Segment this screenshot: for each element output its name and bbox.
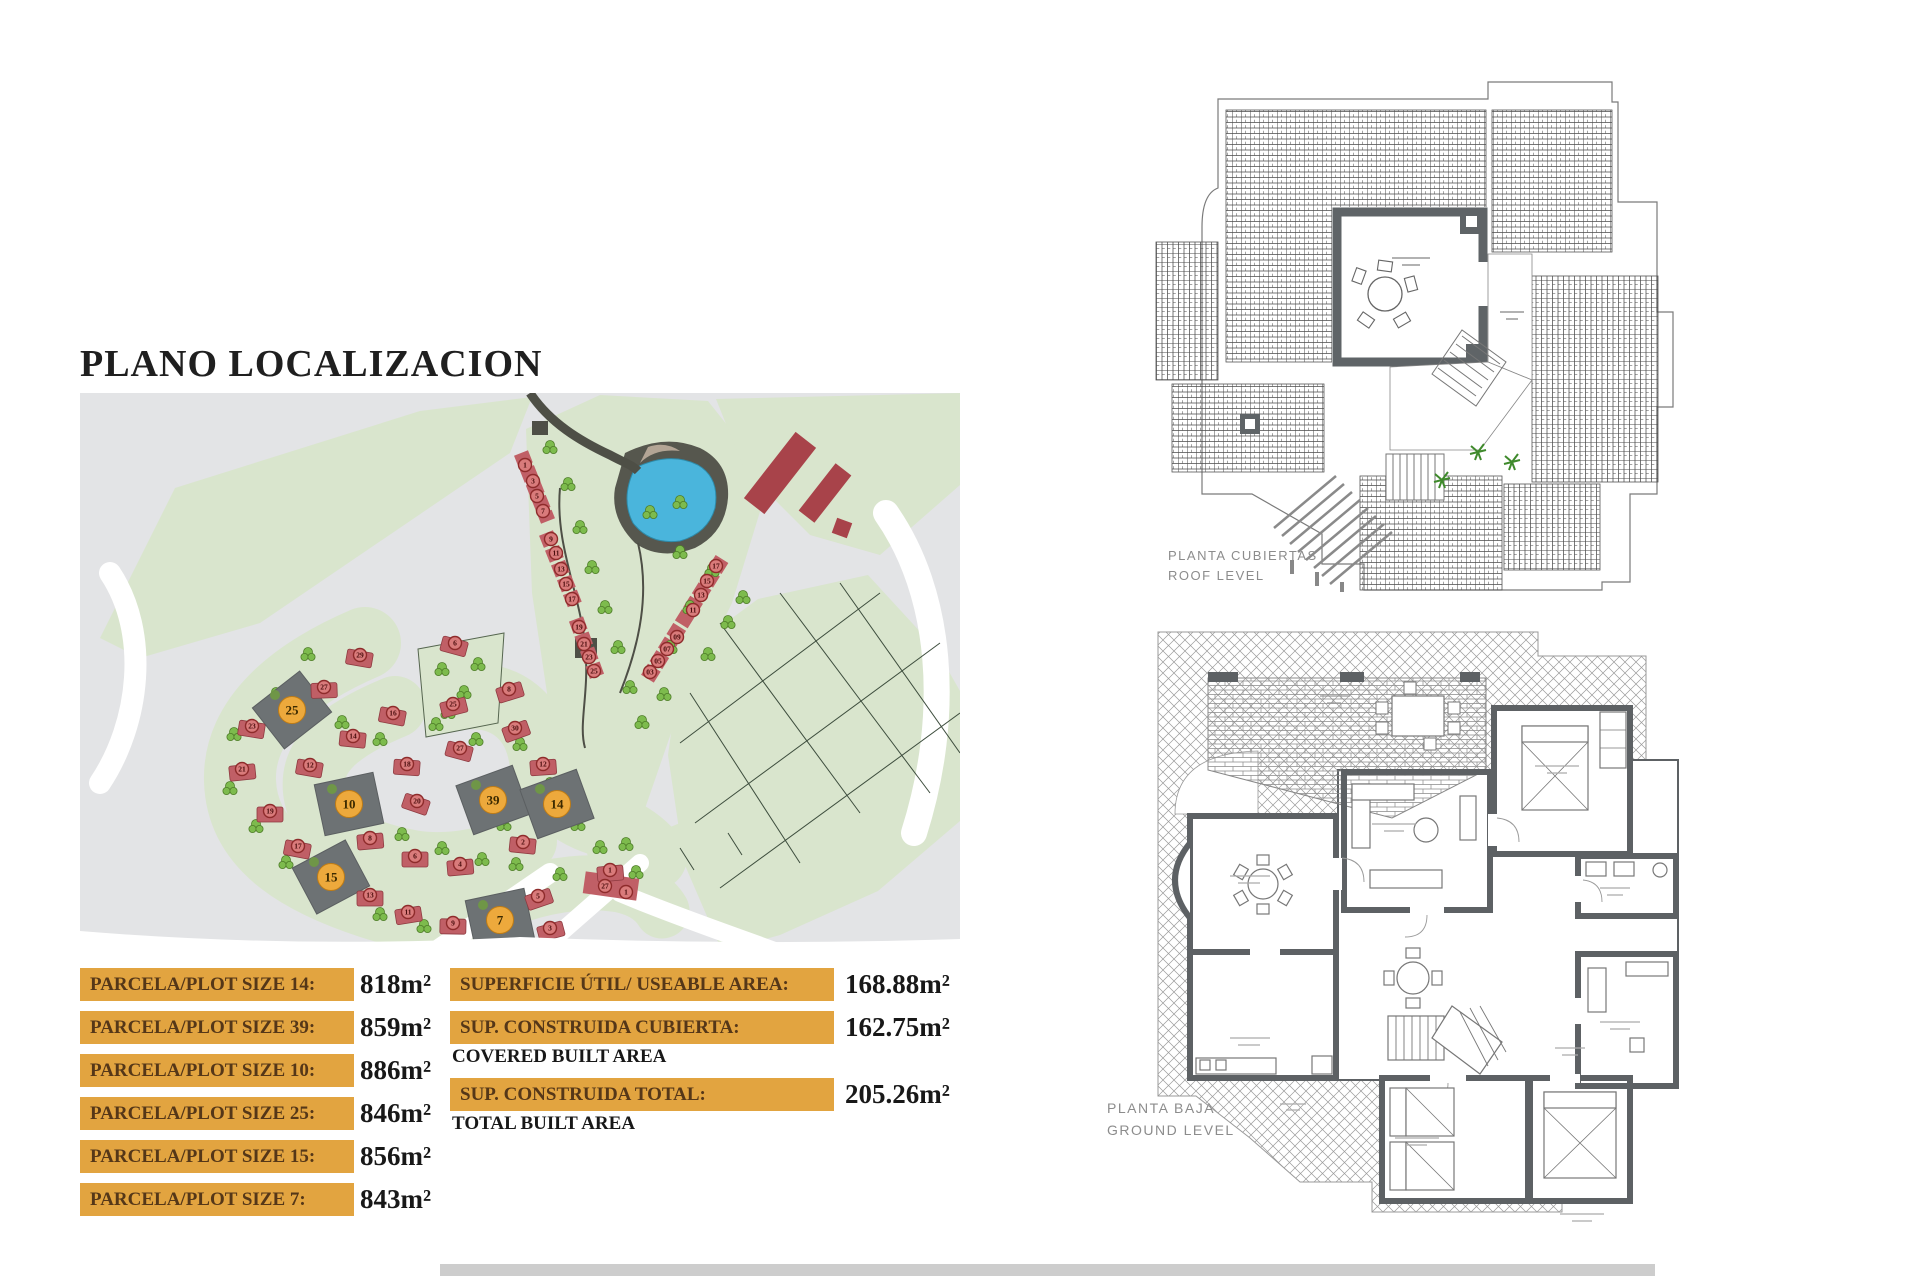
marker-number: 11	[689, 606, 696, 615]
plot-marker: 9	[440, 917, 466, 935]
value-number: 205.26	[845, 1079, 919, 1109]
roof-chimney	[1240, 414, 1260, 434]
roof-plan-caption: PLANTA CUBIERTAS ROOF LEVEL	[1168, 546, 1318, 586]
plot-row-value: 818m²	[360, 968, 431, 1001]
marker-number: 5	[536, 892, 540, 901]
marker-number: 25	[449, 700, 457, 709]
value-unit: m²	[401, 1141, 432, 1171]
plot-marker: 11	[550, 547, 563, 560]
marker-number: 27	[456, 744, 464, 753]
marker-number: 07	[663, 645, 671, 654]
ground-caption-line1: PLANTA BAJA	[1107, 1098, 1235, 1120]
marker-number: 12	[539, 760, 547, 769]
plot-row-label: PARCELA/PLOT SIZE 14:	[80, 968, 354, 1001]
marker-number: 3	[531, 477, 535, 486]
ground-caption-line2: GROUND LEVEL	[1107, 1120, 1235, 1142]
marker-number: 17	[712, 562, 720, 571]
plot-row-label: PARCELA/PLOT SIZE 39:	[80, 1011, 354, 1044]
plot-marker: 12	[530, 758, 557, 776]
value-unit: m²	[401, 1098, 432, 1128]
plot-row-value: 846m²	[360, 1097, 431, 1130]
plot-number: 39	[487, 793, 501, 808]
marker-number: 7	[541, 507, 545, 516]
value-number: 162.75	[845, 1012, 919, 1042]
roof-terrace-room	[1332, 207, 1488, 367]
marker-number: 13	[366, 891, 374, 900]
roof-caption-line2: ROOF LEVEL	[1168, 566, 1318, 586]
roof-caption-line1: PLANTA CUBIERTAS	[1168, 546, 1318, 566]
marker-number: 9	[549, 535, 553, 544]
marker-number: 17	[294, 842, 302, 851]
area-row-label: SUPERFICIE ÚTIL/ USEABLE AREA:	[450, 968, 834, 1001]
plot-marker: 09	[671, 631, 684, 644]
plot-marker: 11	[687, 604, 700, 617]
value-unit: m²	[919, 1012, 950, 1042]
marker-number: 11	[552, 549, 559, 558]
value-number: 843	[360, 1184, 401, 1214]
marker-number: 05	[654, 657, 662, 666]
marker-number: 25	[590, 667, 598, 676]
marker-number: 9	[451, 919, 455, 928]
plot-marker: 13	[357, 889, 383, 907]
value-unit: m²	[401, 1012, 432, 1042]
marker-number: 23	[248, 722, 256, 731]
ground-floor-plan	[1130, 618, 1710, 1240]
marker-number: 29	[356, 651, 364, 660]
plot-row-label: PARCELA/PLOT SIZE 25:	[80, 1097, 354, 1130]
plot-marker: 13	[695, 589, 708, 602]
value-unit: m²	[401, 969, 432, 999]
site-map: 25101573914 2927232119171311916141218208…	[80, 393, 960, 953]
bottom-edge-strip	[440, 1264, 1655, 1276]
plot-marker: 18	[393, 758, 420, 776]
plot-marker: 25	[588, 665, 601, 678]
plot-marker: 15	[701, 575, 714, 588]
area-row-value: 168.88m²	[845, 968, 950, 1001]
plot-marker: 3	[527, 475, 540, 488]
marker-number: 09	[673, 633, 681, 642]
marker-number: 21	[580, 640, 588, 649]
plot-marker: 6	[402, 850, 428, 868]
value-unit: m²	[401, 1055, 432, 1085]
plot-marker: 13	[555, 563, 568, 576]
marker-number: 11	[404, 908, 411, 917]
value-unit: m²	[919, 969, 950, 999]
marker-number: 23	[585, 653, 593, 662]
marker-number: 27	[601, 882, 609, 891]
marker-number: 16	[389, 709, 397, 718]
marker-number: 1	[608, 866, 612, 875]
plot-number: 7	[497, 913, 504, 928]
marker-number: 6	[413, 852, 417, 861]
plot-row-label: PARCELA/PLOT SIZE 15:	[80, 1140, 354, 1173]
plot-marker: 21	[578, 638, 591, 651]
plot-marker: 17	[566, 593, 579, 606]
roof-plan	[1140, 62, 1700, 592]
plot-row-value: 886m²	[360, 1054, 431, 1087]
plot-marker: 07	[661, 643, 674, 656]
plot-marker: 23	[583, 651, 596, 664]
marker-number: 27	[320, 683, 328, 692]
plot-marker: 27	[599, 880, 612, 893]
plot-number: 25	[286, 703, 300, 718]
plot-marker: 19	[573, 621, 586, 634]
area-row-value: 205.26m²	[845, 1078, 950, 1111]
marker-number: 6	[453, 639, 457, 648]
value-number: 818	[360, 969, 401, 999]
plot-marker: 17	[710, 560, 723, 573]
plot-row-value: 856m²	[360, 1140, 431, 1173]
plot-row-label: PARCELA/PLOT SIZE 10:	[80, 1054, 354, 1087]
marker-number: 12	[306, 761, 314, 770]
value-number: 886	[360, 1055, 401, 1085]
value-unit: m²	[919, 1079, 950, 1109]
area-row-sublabel: TOTAL BUILT AREA	[452, 1113, 635, 1135]
area-row-label: SUP. CONSTRUIDA TOTAL:	[450, 1078, 834, 1111]
plot-row-label: PARCELA/PLOT SIZE 7:	[80, 1183, 354, 1216]
plot-marker: 27	[311, 681, 338, 699]
plot-number: 10	[343, 797, 356, 812]
marker-number: 18	[403, 760, 411, 769]
plot-row-value: 859m²	[360, 1011, 431, 1044]
marker-number: 03	[646, 668, 654, 677]
plot-number: 15	[325, 870, 339, 885]
plot-marker: 1	[519, 459, 532, 472]
value-number: 846	[360, 1098, 401, 1128]
plot-marker: 1	[620, 886, 633, 899]
marker-number: 20	[413, 797, 421, 806]
marker-number: 15	[703, 577, 711, 586]
plot-marker: 03	[644, 666, 657, 679]
plot-marker: 19	[257, 805, 283, 823]
value-number: 859	[360, 1012, 401, 1042]
marker-number: 1	[624, 888, 628, 897]
area-row-sublabel: COVERED BUILT AREA	[452, 1046, 666, 1068]
plot-marker: 05	[652, 655, 665, 668]
value-unit: m²	[401, 1184, 432, 1214]
marker-number: 3	[548, 924, 552, 933]
marker-number: 21	[238, 765, 246, 774]
plot-marker: 9	[545, 533, 558, 546]
marker-number: 19	[266, 807, 274, 816]
plot-marker: 5	[531, 490, 544, 503]
marker-number: 5	[535, 492, 539, 501]
area-row-label: SUP. CONSTRUIDA CUBIERTA:	[450, 1011, 834, 1044]
marker-number: 2	[521, 838, 525, 847]
marker-number: 4	[458, 860, 462, 869]
ground-plan-caption: PLANTA BAJA GROUND LEVEL	[1107, 1098, 1235, 1141]
marker-number: 14	[349, 732, 357, 741]
value-number: 168.88	[845, 969, 919, 999]
map-pond	[614, 442, 728, 554]
plot-marker: 15	[560, 578, 573, 591]
marker-number: 13	[557, 565, 565, 574]
marker-number: 8	[368, 834, 372, 843]
marker-number: 8	[507, 685, 511, 694]
marker-number: 1	[523, 461, 527, 470]
marker-number: 17	[568, 595, 576, 604]
marker-number: 30	[511, 724, 519, 733]
plot-row-value: 843m²	[360, 1183, 431, 1216]
value-number: 856	[360, 1141, 401, 1171]
area-row-value: 162.75m²	[845, 1011, 950, 1044]
page-title: PLANO LOCALIZACION	[80, 342, 542, 386]
marker-number: 13	[697, 591, 705, 600]
plot-number: 14	[551, 797, 565, 812]
plot-marker: 7	[537, 505, 550, 518]
marker-number: 19	[575, 623, 583, 632]
marker-number: 15	[562, 580, 570, 589]
